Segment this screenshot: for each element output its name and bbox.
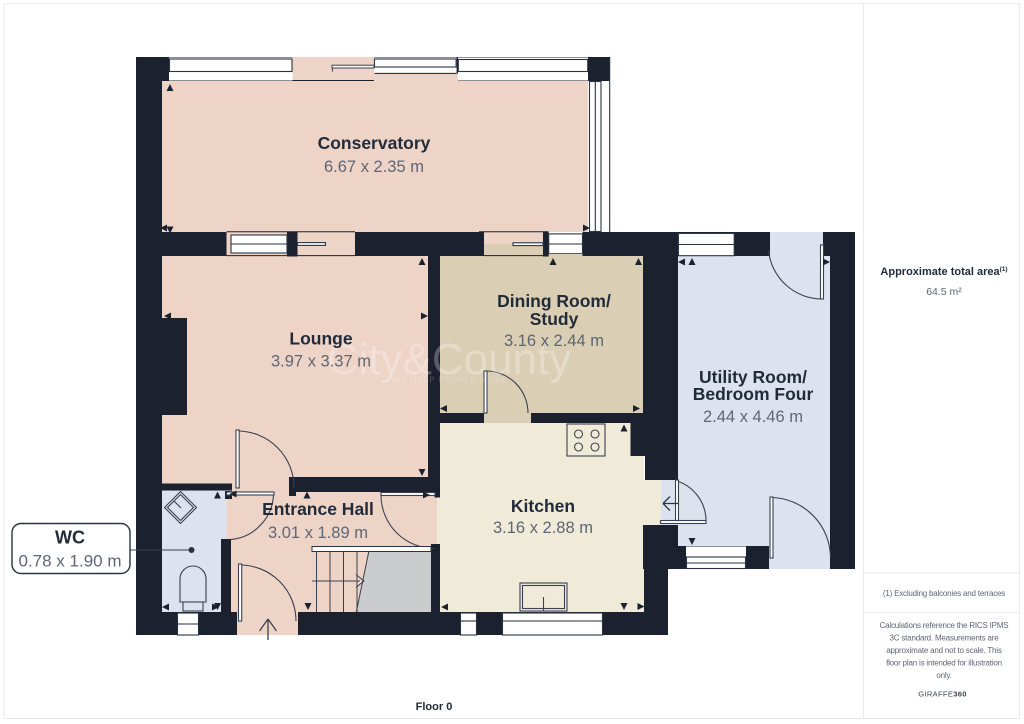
- svg-text:64.5 m²: 64.5 m²: [926, 286, 962, 298]
- svg-text:approximate and not to scale.: approximate and not to scale. This: [886, 646, 1002, 655]
- svg-text:3C standard. Measurements are: 3C standard. Measurements are: [890, 634, 1000, 643]
- svg-text:Lounge: Lounge: [289, 329, 352, 349]
- svg-text:3.16 x 2.44 m: 3.16 x 2.44 m: [504, 332, 604, 350]
- svg-text:only.: only.: [936, 671, 951, 680]
- svg-text:2.44 x 4.46 m: 2.44 x 4.46 m: [703, 408, 803, 426]
- svg-text:GIRAFFE360: GIRAFFE360: [918, 690, 967, 699]
- svg-text:3.97 x 3.37 m: 3.97 x 3.37 m: [271, 353, 371, 371]
- svg-text:Kitchen: Kitchen: [511, 496, 575, 516]
- svg-text:WC: WC: [55, 528, 85, 548]
- svg-text:6.67 x 2.35 m: 6.67 x 2.35 m: [324, 158, 424, 176]
- svg-text:3.01 x 1.89 m: 3.01 x 1.89 m: [268, 524, 368, 542]
- svg-text:Conservatory: Conservatory: [318, 133, 431, 153]
- svg-text:0.78 x 1.90 m: 0.78 x 1.90 m: [18, 552, 121, 571]
- svg-text:floor plan is intended for ill: floor plan is intended for illustration: [886, 659, 1002, 668]
- svg-text:Dining Room/: Dining Room/: [497, 291, 611, 311]
- svg-text:Calculations reference the RIC: Calculations reference the RICS IPMS: [880, 621, 1009, 630]
- svg-text:Study: Study: [530, 309, 579, 329]
- svg-text:Entrance Hall: Entrance Hall: [262, 499, 374, 519]
- svg-text:Approximate total area(1): Approximate total area(1): [880, 266, 1007, 278]
- svg-text:3.16 x 2.88 m: 3.16 x 2.88 m: [493, 519, 593, 537]
- svg-text:Bedroom Four: Bedroom Four: [693, 384, 814, 404]
- svg-text:(1) Excluding balconies and te: (1) Excluding balconies and terraces: [883, 589, 1005, 598]
- svg-text:WE HELP PEOPLE MOVE: WE HELP PEOPLE MOVE: [393, 376, 508, 385]
- svg-text:Floor 0: Floor 0: [416, 701, 453, 713]
